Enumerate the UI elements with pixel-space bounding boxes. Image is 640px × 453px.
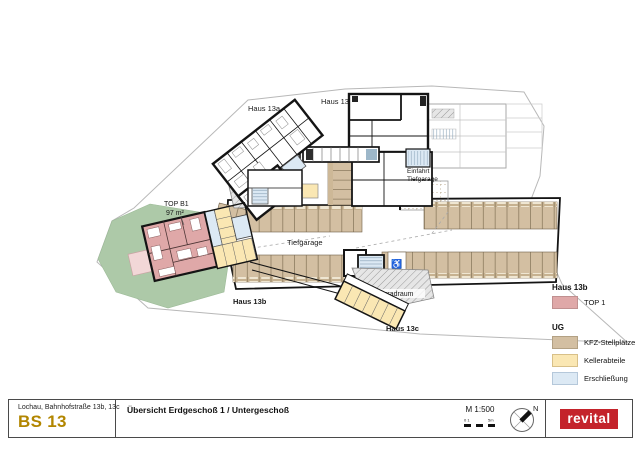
- label-haus-13a: Haus 13a: [248, 104, 281, 113]
- legend-label-keller: Kellerabteile: [584, 356, 625, 365]
- scale-bar-end: 5m: [488, 418, 494, 423]
- scale-label: M 1:500: [448, 405, 512, 414]
- scale-bar: 0 1 5m: [463, 417, 497, 430]
- legend-item-keller: Kellerabteile: [552, 354, 638, 367]
- legend-group-title-haus13b: Haus 13b: [552, 283, 638, 292]
- project-code: BS 13: [18, 412, 115, 432]
- legend-swatch-erschliessung: [552, 372, 578, 385]
- title-block-project-cell: Lochau, Bahnhofstraße 13b, 13c BS 13: [9, 400, 116, 437]
- title-block: Lochau, Bahnhofstraße 13b, 13c BS 13 Übe…: [8, 399, 633, 438]
- building-haus-13: [349, 94, 428, 152]
- label-haus-13c: Haus 13c: [386, 324, 419, 333]
- label-top-b1: TOP B1: [164, 201, 189, 208]
- building-13a-connector: [248, 170, 302, 206]
- legend-item-kfz: KFZ-Stellplätze: [552, 336, 638, 349]
- legend-swatch-top1: [552, 296, 578, 309]
- legend: Haus 13b TOP 1 UG KFZ-Stellplätze Keller…: [552, 283, 638, 390]
- label-haus-13: Haus 13: [321, 97, 349, 106]
- scale-bar-start: 0 1: [464, 418, 470, 423]
- legend-swatch-kfz: [552, 336, 578, 349]
- title-block-logo-cell: revital: [546, 400, 632, 437]
- wheelchair-icon: ♿: [391, 258, 402, 269]
- label-einfahrt-line2: Tiefgarage: [407, 176, 438, 183]
- title-block-middle-cell: Übersicht Erdgeschoß 1 / Untergeschoß M …: [116, 400, 546, 437]
- revital-logo: revital: [560, 409, 617, 429]
- label-haus-13b: Haus 13b: [233, 297, 267, 306]
- cellar-room-small: [302, 184, 318, 198]
- label-einfahrt-line1: Einfahrt: [407, 168, 430, 175]
- legend-label-kfz: KFZ-Stellplätze: [584, 338, 635, 347]
- label-tiefgarage: Tiefgarage: [287, 238, 323, 247]
- legend-item-top1: TOP 1: [552, 296, 638, 309]
- legend-label-top1: TOP 1: [584, 298, 605, 307]
- project-address: Lochau, Bahnhofstraße 13b, 13c: [18, 404, 115, 411]
- legend-group-title-ug: UG: [552, 323, 638, 332]
- north-arrow: N: [506, 401, 542, 436]
- parking-row-north-east: [424, 202, 557, 229]
- legend-label-erschliessung: Erschließung: [584, 374, 628, 383]
- north-label: N: [533, 404, 538, 413]
- legend-swatch-keller: [552, 354, 578, 367]
- legend-item-erschliessung: Erschließung: [552, 372, 638, 385]
- scale-block: M 1:500 0 1 5m: [448, 405, 512, 435]
- floor-plan: ♿ Fahrradraum: [0, 0, 640, 396]
- corridor-bridge: [303, 147, 379, 162]
- sheet-title: Übersicht Erdgeschoß 1 / Untergeschoß: [127, 405, 289, 415]
- label-top-b1-area: 97 m²: [166, 210, 185, 217]
- plan-sheet: ♿ Fahrradraum: [0, 0, 640, 453]
